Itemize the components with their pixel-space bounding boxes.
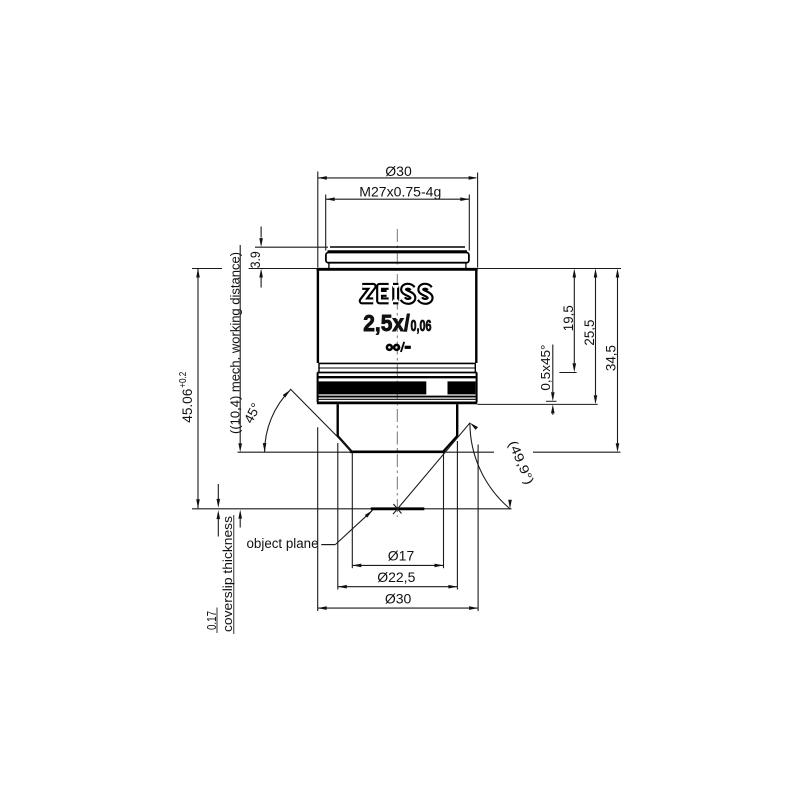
svg-text:Ø22,5: Ø22,5 (377, 569, 415, 585)
svg-text:2,5x/: 2,5x/ (363, 310, 410, 336)
svg-text:19,5: 19,5 (561, 305, 576, 331)
svg-text:25,5: 25,5 (582, 320, 597, 346)
svg-text:0,5x45°: 0,5x45° (538, 345, 553, 391)
svg-text:coverslip thickness: coverslip thickness (220, 515, 235, 632)
svg-text:45°: 45° (241, 401, 264, 426)
svg-text:(49,9°): (49,9°) (505, 438, 537, 486)
svg-text:+0.2: +0.2 (178, 371, 189, 387)
svg-text:Ø17: Ø17 (388, 548, 415, 564)
svg-text:((10,4) mech. working distance: ((10,4) mech. working distance) (227, 252, 242, 434)
svg-text:M27x0.75-4g: M27x0.75-4g (359, 185, 441, 200)
svg-text:Ø30: Ø30 (385, 590, 412, 606)
svg-text:object plane: object plane (247, 536, 319, 551)
svg-text:34,5: 34,5 (604, 345, 619, 371)
svg-text:45.06: 45.06 (179, 389, 195, 423)
svg-text:3.9: 3.9 (248, 251, 263, 268)
svg-text:0,06: 0,06 (411, 318, 432, 335)
svg-text:Ø30: Ø30 (385, 163, 412, 179)
